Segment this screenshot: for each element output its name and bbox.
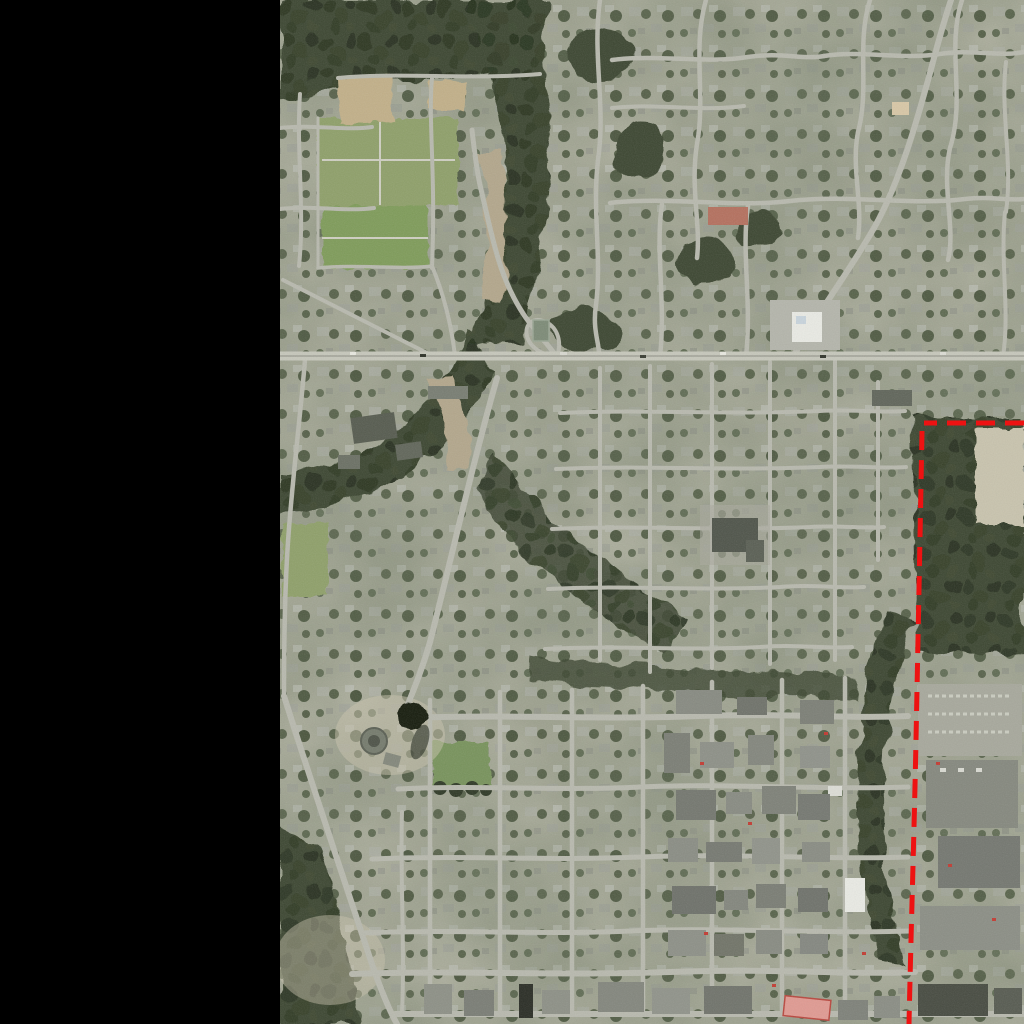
screenshot-stage: Aerial satellite photograph of a suburba… [0, 0, 1024, 1024]
side-panel [0, 0, 280, 1024]
aerial-map[interactable]: Aerial satellite photograph of a suburba… [0, 0, 1024, 1024]
